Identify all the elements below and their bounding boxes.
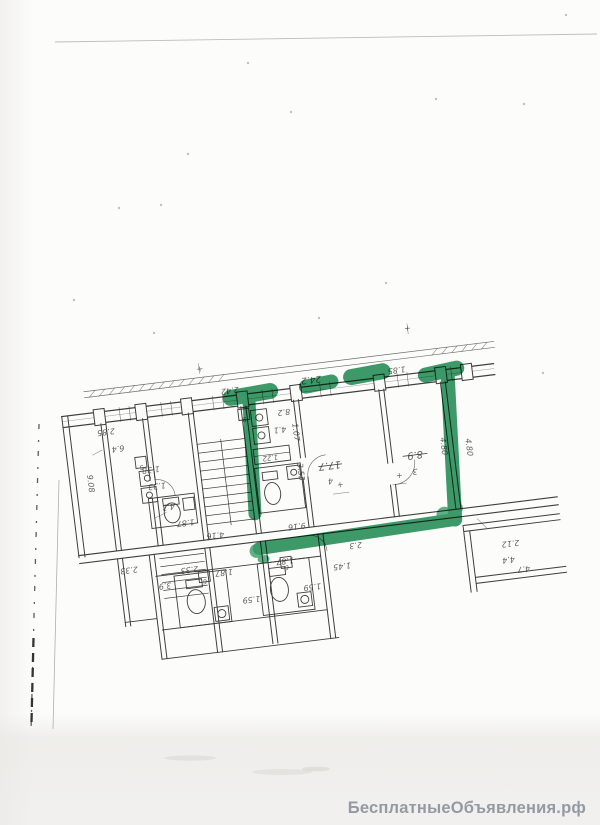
svg-text:2.12: 2.12: [501, 538, 520, 549]
svg-text:4.80: 4.80: [463, 438, 474, 457]
watermark: БесплатныеОбъявления.рф: [348, 799, 586, 818]
svg-text:2.3: 2.3: [349, 540, 363, 550]
svg-text:17.7: 17.7: [317, 458, 341, 472]
page-specks: [73, 14, 567, 374]
svg-text:5: 5: [139, 463, 144, 471]
svg-text:1.45: 1.45: [333, 561, 352, 572]
interior-walls-lower: [117, 534, 335, 663]
svg-text:1.59: 1.59: [303, 581, 322, 592]
svg-text:4.4: 4.4: [502, 555, 516, 565]
svg-text:1.59: 1.59: [242, 594, 261, 605]
svg-text:+: +: [336, 480, 344, 490]
svg-text:+: +: [404, 323, 412, 333]
highlight-top-patch-1: [306, 382, 332, 387]
lower-right-room: [463, 514, 567, 592]
svg-text:2.33: 2.33: [120, 565, 139, 576]
page-crease-line: [55, 34, 597, 42]
plan-ink: 2.856.49.081.381.334.31.872.4224.21.858.…: [56, 308, 571, 667]
plan-dimension-labels: 2.856.49.081.381.334.31.872.4224.21.858.…: [72, 313, 531, 625]
sheet-edge-lines: [31, 424, 59, 731]
svg-text:+: +: [396, 471, 404, 481]
svg-text:9.08: 9.08: [85, 474, 96, 493]
svg-text:4.1: 4.1: [273, 424, 287, 434]
svg-text:8.2: 8.2: [277, 407, 291, 417]
scanned-page: 2.856.49.081.381.334.31.872.4224.21.858.…: [0, 0, 600, 825]
floorplan-scan: 2.856.49.081.381.334.31.872.4224.21.858.…: [0, 0, 600, 825]
svg-text:4.16: 4.16: [206, 530, 225, 541]
svg-text:1.33: 1.33: [148, 481, 167, 492]
svg-text:1.07: 1.07: [290, 423, 301, 443]
svg-text:4.3: 4.3: [162, 502, 176, 512]
highlight-top-patch-2: [351, 371, 383, 377]
pencil-smudges: [164, 755, 330, 775]
svg-text:8.9: 8.9: [406, 448, 423, 461]
svg-text:6.4: 6.4: [111, 443, 125, 453]
svg-text:1.22: 1.22: [261, 453, 278, 463]
svg-text:4: 4: [327, 476, 333, 486]
svg-text:3.9: 3.9: [158, 581, 172, 591]
svg-text:6: 6: [202, 577, 207, 585]
svg-text:+: +: [196, 364, 204, 374]
corridor-wall: [79, 497, 558, 564]
svg-text:3: 3: [412, 467, 418, 477]
svg-text:4.7: 4.7: [516, 564, 531, 575]
svg-text:9.16: 9.16: [287, 521, 306, 532]
svg-text:2.85: 2.85: [97, 426, 116, 437]
svg-text:1.87: 1.87: [175, 517, 195, 528]
svg-text:2.33: 2.33: [180, 564, 199, 575]
